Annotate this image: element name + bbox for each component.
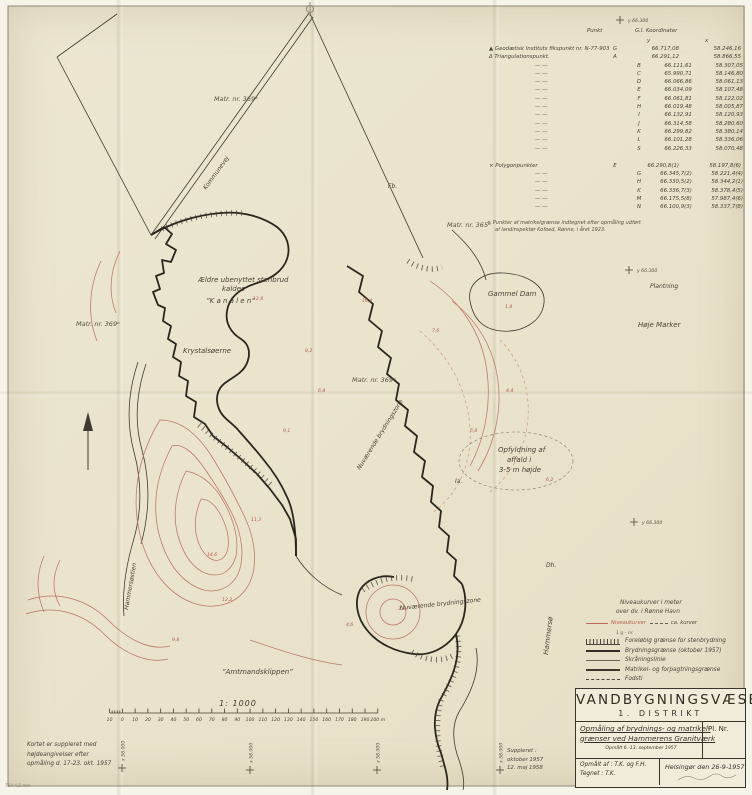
row-annotation: — —: [487, 62, 632, 70]
grid-cross: [373, 766, 381, 774]
legend-item: Fodsti: [586, 675, 748, 685]
row-annotation: — —: [487, 70, 632, 78]
coord-x: 58.307,05: [692, 62, 743, 70]
coord-x: 58.146,80: [692, 70, 743, 78]
map-label: Nuværende brydningszone: [356, 398, 405, 471]
row-annotation: — —: [487, 203, 632, 211]
map-label: ”K a n a l e n”: [206, 297, 255, 305]
coord-x: 57.987,4(6): [692, 195, 743, 203]
map-subtitle: Opmålt 6.-13. september 1957: [580, 744, 702, 754]
spot-height: 11,3: [251, 517, 261, 523]
coord-x: 58.337,7(8): [692, 203, 743, 211]
map-label: Matr. nr. 369ᵇ: [76, 320, 120, 328]
hatched-line-sample: [586, 639, 620, 645]
coord-row: — —B66.111,6158.307,05: [487, 62, 743, 70]
map-title: Opmåling af brydnings- og matrikel- græn…: [576, 722, 702, 758]
map-label: Krystalsøerne: [183, 347, 231, 355]
coord-y: 66.717,08: [623, 45, 679, 53]
scale-tick-label: 140: [297, 717, 306, 723]
map-label: affald i: [507, 456, 531, 464]
legend-item-label: Matrikel- og forpagtningsgrænse: [625, 666, 720, 675]
col-coords: G.I. Koordinater: [635, 27, 677, 35]
scale-tick-label: 80: [222, 717, 228, 723]
note-line: oktober 1957: [507, 756, 543, 765]
legend-item-label: Skråningslinie: [625, 656, 666, 665]
point-id: I: [632, 111, 645, 119]
row-annotation: — —: [487, 120, 632, 128]
coord-x: 58.378,4(5): [692, 187, 743, 195]
spot-height: 1,8: [505, 304, 512, 310]
point-id: F: [632, 95, 645, 103]
map-label: Ia.: [455, 478, 462, 485]
dashed-line-sample: [586, 679, 620, 680]
grid-cross-label: y 66.300: [641, 520, 662, 526]
point-id: M: [632, 195, 645, 203]
coord-y: 66.061,81: [646, 95, 692, 103]
scale-tick-label: 160: [322, 717, 331, 723]
coord-y: 66.175,5(8): [646, 195, 692, 203]
polygon-row: — —M66.175,5(8)57.987,4(6): [487, 195, 743, 203]
point-id: S: [632, 145, 645, 153]
supplemented-note: Suppleret : oktober 1957 12. maj 1958: [507, 747, 543, 773]
coord-x: 58.280,60: [692, 120, 743, 128]
grid-cross: [118, 764, 126, 772]
row-annotation: — —: [487, 95, 632, 103]
scale-tick-label: 130: [284, 717, 293, 723]
legend-heading: over dv. i Rønne Havn: [616, 608, 748, 617]
scale-tick-label: 30: [158, 717, 164, 723]
map-label: Hammersø: [542, 616, 555, 656]
row-annotation: — —: [487, 128, 632, 136]
coord-rows: ▲ Geodætisk Instituts fikspunkt nr. N-77…: [487, 45, 743, 153]
map-title-line: Opmåling af brydnings- og matrikel-: [580, 724, 702, 734]
scale-tick-label: 60: [196, 717, 202, 723]
place-date-text: Helsingør den 26-9-1957: [665, 763, 744, 771]
table-footnote: × Punkter af matrikelgrænse indtegnet ef…: [487, 220, 743, 235]
coord-row: — —S66.226,3358.070,48: [487, 145, 743, 153]
map-label: Matr. nr. 369ᵈ: [352, 376, 396, 384]
map-label: Høje Marker: [638, 321, 682, 329]
row-annotation: Δ Triangulationspunkt.: [487, 53, 607, 61]
coord-row: — —E66.034,0958.107,48: [487, 86, 743, 94]
title-block-agency-row: VANDBYGNINGSVÆSENET 1. DISTRIKT: [576, 689, 745, 722]
point-id: N: [632, 203, 645, 211]
coord-y: 66.132,91: [646, 111, 692, 119]
row-annotation: ▲ Geodætisk Instituts fikspunkt nr. N-77…: [487, 45, 607, 53]
map-label: Ældre ubenyttet stenbrud: [197, 276, 289, 284]
coord-y: 66.034,09: [646, 86, 692, 94]
grid-cross: [625, 266, 633, 274]
grid-cross: [616, 16, 624, 24]
coord-y: 66.291,12: [623, 53, 679, 61]
district-name: 1. DISTRIKT: [576, 709, 745, 718]
scale-tick-label: 90: [234, 717, 240, 723]
point-id: G: [632, 170, 645, 178]
grid-cross: [496, 766, 504, 774]
point-id: H: [632, 103, 645, 111]
scale-tick-label: 120: [271, 717, 280, 723]
coord-x: 58.120,93: [692, 111, 743, 119]
spot-height: 9,8: [172, 637, 179, 643]
title-block-title-row: Opmåling af brydnings- og matrikel- græn…: [576, 722, 745, 759]
thin-line-sample: [586, 660, 620, 661]
legend-item: Brydningsgrænse (oktober 1957): [586, 647, 748, 657]
row-annotation: — —: [487, 103, 632, 111]
spot-height: 14,6: [207, 552, 217, 558]
point-id: L: [632, 136, 645, 144]
note-line: opmåling d. 17-23. okt. 1957: [27, 760, 111, 770]
coordinate-table: Punkt G.I. Koordinater y x ▲ Geodætisk I…: [487, 27, 743, 235]
scale-tick-label: 150: [310, 717, 319, 723]
map-label: Matr. nr. 369ᵃ: [214, 95, 258, 103]
point-id: B: [632, 62, 645, 70]
title-block: VANDBYGNINGSVÆSENET 1. DISTRIKT Opmåling…: [575, 688, 746, 788]
coord-row: — —F66.061,8158.122,02: [487, 95, 743, 103]
footnote-line: af landinspektør Kofoed, Rønne, i året 1…: [487, 227, 743, 235]
coord-y: 66.100,9(3): [646, 203, 692, 211]
col-punkt: Punkt: [587, 27, 602, 35]
coordinate-table-subheader: y x: [487, 37, 743, 45]
polygon-rows: × PolygonpunkterE66.290,8(1)58.197,8(6)—…: [487, 162, 743, 212]
row-annotation: — —: [487, 136, 632, 144]
scale-tick-label: 70: [209, 717, 215, 723]
contour-solid-label: Niveaukurver: [611, 619, 646, 628]
coord-y: 66.290,8(1): [623, 162, 679, 170]
spot-height: 9,1: [283, 428, 290, 434]
print-code: 754 4,5 mm: [5, 783, 30, 788]
row-annotation: — —: [487, 78, 632, 86]
thick-line-sample: [586, 650, 620, 652]
coord-y: 66.330,5(2): [646, 178, 692, 186]
plate-number-cell: Pl. Nr.: [702, 722, 745, 758]
map-label: Hammersøstien: [123, 562, 138, 610]
coord-row: — —D66.066,8658.061,13: [487, 78, 743, 86]
note-line: højdeangivelser efter: [27, 751, 111, 761]
grid-cross-label: x 58.000: [499, 743, 505, 764]
scale-tick-label: 200 m: [370, 717, 385, 723]
coordinate-table-header: Punkt G.I. Koordinater: [487, 27, 743, 37]
coord-y: 66.066,86: [646, 78, 692, 86]
map-title-line: grænser ved Hammerens Granitværk: [580, 734, 702, 744]
surveyed-by: Opmålt af : T.K. og F.H.: [580, 761, 659, 770]
grid-cross-label: x 58.000: [376, 743, 382, 764]
coord-x: 58.061,13: [692, 78, 743, 86]
legend-item-label: Brydningsgrænse (oktober 1957): [625, 647, 722, 656]
map-sheet: 1: 1000 10010203040506070809010011012013…: [0, 0, 752, 795]
coord-y: 66.345,7(2): [646, 170, 692, 178]
scale-tick-label: 10: [107, 717, 113, 723]
point-id: J: [632, 120, 645, 128]
scale-tick-label: 20: [145, 717, 151, 723]
scale-tick-label: 100: [246, 717, 255, 723]
map-label: Dh.: [546, 562, 556, 569]
legend-item-label: Fodsti: [625, 675, 642, 684]
title-block-credit-row: Opmålt af : T.K. og F.H. Tegnet : T.K. H…: [576, 759, 745, 785]
scale-tick-label: 50: [183, 717, 189, 723]
grid-cross-label: y 66.300: [627, 18, 648, 24]
contour-dashed-label: ca. kurver: [671, 619, 697, 628]
spot-height: 6,4: [318, 388, 325, 394]
scale-bar: 1: 1000 10010203040506070809010011012013…: [107, 699, 386, 723]
coord-y: 65.990,71: [646, 70, 692, 78]
coord-x: 58.005,87: [692, 103, 743, 111]
boundary-lines: [57, 13, 544, 790]
coord-y: 66.314,58: [646, 120, 692, 128]
spot-height: 10,4: [362, 298, 372, 304]
approx-contours: [420, 331, 528, 513]
coord-x: 58.336,06: [692, 136, 743, 144]
legend-contour-row: Niveaukurver ca. kurver: [586, 619, 748, 628]
scale-tick-label: 190: [361, 717, 370, 723]
note-line: Kortet er suppleret med: [27, 741, 111, 751]
note-line: 12. maj 1958: [507, 764, 543, 773]
coord-row: ▲ Geodætisk Instituts fikspunkt nr. N-77…: [487, 45, 743, 53]
polygon-row: — —H66.330,5(2)58.344,2(1): [487, 178, 743, 186]
coord-y: 66.299,82: [646, 128, 692, 136]
polygon-row: × PolygonpunkterE66.290,8(1)58.197,8(6): [487, 162, 743, 170]
grid-cross-label: y 66.300: [636, 268, 657, 274]
scale-tick-label: 0: [121, 717, 124, 723]
coord-row: — —K66.299,8258.380,14: [487, 128, 743, 136]
point-id: G: [607, 45, 623, 53]
legend: Niveaukurver i meter over dv. i Rønne Ha…: [586, 599, 748, 685]
signature-scribble: [674, 772, 744, 784]
parcel-note: 1 g - nr.: [616, 630, 748, 637]
grid-cross-label: x 58.000: [249, 743, 255, 764]
point-id: C: [632, 70, 645, 78]
coord-x: 58.221,4(4): [692, 170, 743, 178]
point-id: E: [632, 86, 645, 94]
credits: Opmålt af : T.K. og F.H. Tegnet : T.K.: [576, 759, 660, 785]
coord-y: 66.101,28: [646, 136, 692, 144]
point-id: A: [607, 53, 623, 61]
coord-x: 58.197,8(6): [679, 162, 741, 170]
legend-heading: Niveaukurver i meter: [620, 599, 748, 608]
drawn-by: Tegnet : T.K.: [580, 770, 659, 779]
coord-x: 58.380,14: [692, 128, 743, 136]
coord-x: 58.246,16: [679, 45, 741, 53]
map-label: Matr. nr. 365ᵈ: [447, 221, 491, 229]
coord-x: 58.070,48: [692, 145, 743, 153]
registration-mark: [307, 2, 314, 16]
spot-height: 12,8: [253, 296, 263, 302]
col-y: y: [647, 37, 650, 45]
legend-item: Skråningslinie: [586, 656, 748, 666]
coord-x: 58.866,55: [679, 53, 741, 61]
spot-height: 12,2: [222, 597, 232, 603]
spot-height: 4,6: [346, 622, 353, 628]
agency-name: VANDBYGNINGSVÆSENET: [576, 692, 745, 708]
note-line: Suppleret :: [507, 747, 543, 756]
coord-y: 66.111,61: [646, 62, 692, 70]
north-arrow: [83, 412, 93, 470]
place-and-date: Helsingør den 26-9-1957: [660, 759, 745, 785]
coord-row: — —J66.314,5858.280,60: [487, 120, 743, 128]
point-id: K: [632, 187, 645, 195]
point-id: K: [632, 128, 645, 136]
scale-tick-label: 170: [335, 717, 344, 723]
row-annotation: — —: [487, 170, 632, 178]
coord-row: Δ Triangulationspunkt.A66.291,1258.866,5…: [487, 53, 743, 61]
map-label: Fb.: [388, 183, 397, 190]
coord-x: 58.107,48: [692, 86, 743, 94]
coord-y: 66.019,48: [646, 103, 692, 111]
scale-tick-label: 40: [171, 717, 177, 723]
grid-cross: [246, 766, 254, 774]
spot-height: 7,6: [432, 328, 439, 334]
polygon-row: — —G66.345,7(2)58.221,4(4): [487, 170, 743, 178]
coord-x: 58.122,02: [692, 95, 743, 103]
medium-line-sample: [586, 669, 620, 671]
contour-dash-sample: [650, 623, 668, 624]
coord-row: — —H66.019,4858.005,87: [487, 103, 743, 111]
coord-row: — —I66.132,9158.120,93: [487, 111, 743, 119]
polygon-row: — —K66.336,7(3)58.378,4(5): [487, 187, 743, 195]
map-label: Nuværende brydningszone: [399, 596, 481, 611]
col-x: x: [705, 37, 708, 45]
quarry-outlines: [151, 213, 465, 790]
coord-y: 66.226,33: [646, 145, 692, 153]
row-annotation: — —: [487, 145, 632, 153]
scale-title: 1: 1000: [219, 699, 257, 708]
point-id: H: [632, 178, 645, 186]
map-label: kaldes: [222, 285, 245, 293]
legend-item-label: Foreløbig grænse for stenbrydning: [625, 637, 726, 646]
legend-item: Foreløbig grænse for stenbrydning: [586, 637, 748, 647]
map-label: ”Amtmandsklippen”: [222, 668, 293, 676]
map-label: Plantning: [650, 283, 678, 290]
coord-y: 66.336,7(3): [646, 187, 692, 195]
scale-tick-label: 110: [258, 717, 267, 723]
spot-height: 5,8: [470, 428, 477, 434]
row-annotation: — —: [487, 178, 632, 186]
spot-height: 3,2: [398, 606, 405, 612]
coord-row: — —C65.990,7158.146,80: [487, 70, 743, 78]
map-label: Opfyldning af: [498, 446, 547, 454]
spot-height: 6,2: [546, 477, 553, 483]
coord-x: 58.344,2(1): [692, 178, 743, 186]
coord-row: — —L66.101,2858.336,06: [487, 136, 743, 144]
map-label: Kommunevej: [202, 155, 231, 191]
row-annotation: — —: [487, 86, 632, 94]
grid-cross-label: x 58.000: [121, 741, 127, 762]
map-label: Gammel Dam: [488, 290, 537, 298]
row-annotation: × Polygonpunkter: [487, 162, 607, 170]
contour-line-sample: [586, 623, 608, 624]
polygon-row: — —N66.100,9(3)58.337,7(8): [487, 203, 743, 211]
point-id: D: [632, 78, 645, 86]
grid-cross: [630, 518, 638, 526]
scale-tick-label: 10: [132, 717, 138, 723]
spot-height: 8,2: [305, 348, 312, 354]
spot-height: 4,4: [506, 388, 513, 394]
scale-bar-line: [110, 709, 378, 714]
legend-item: Matrikel- og forpagtningsgrænse: [586, 666, 748, 676]
row-annotation: — —: [487, 195, 632, 203]
point-id: E: [607, 162, 623, 170]
bottom-left-note: Kortet er suppleret med højdeangivelser …: [27, 741, 111, 770]
scale-tick-label: 180: [348, 717, 357, 723]
map-label: 3-5 m højde: [499, 466, 541, 474]
row-annotation: — —: [487, 111, 632, 119]
row-annotation: — —: [487, 187, 632, 195]
